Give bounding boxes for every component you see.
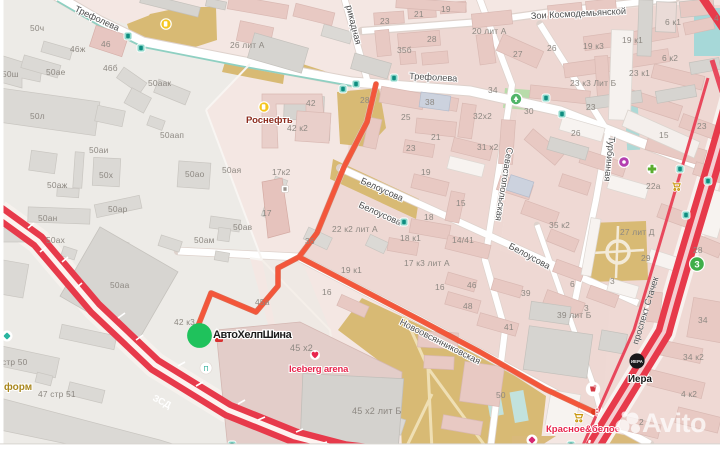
svg-text:19: 19	[421, 167, 431, 177]
svg-text:6 к1: 6 к1	[665, 17, 681, 27]
svg-text:26: 26	[571, 128, 581, 138]
svg-text:Роснефть: Роснефть	[246, 115, 293, 126]
svg-text:50ао: 50ао	[185, 169, 205, 179]
svg-text:3: 3	[584, 303, 589, 313]
svg-text:39: 39	[521, 288, 531, 298]
svg-text:50ав: 50ав	[233, 222, 253, 232]
svg-text:50аа: 50аа	[110, 280, 130, 290]
svg-text:20 лит А: 20 лит А	[472, 26, 507, 36]
svg-text:42: 42	[306, 98, 316, 108]
svg-text:50аж: 50аж	[47, 180, 68, 190]
svg-text:23: 23	[406, 143, 416, 153]
svg-text:17 к3 лит А: 17 к3 лит А	[404, 258, 450, 268]
svg-text:17к2: 17к2	[272, 167, 291, 177]
svg-text:29: 29	[641, 253, 651, 263]
svg-text:28: 28	[427, 34, 437, 44]
svg-text:Красное&белое: Красное&белое	[546, 424, 620, 435]
svg-text:18: 18	[424, 212, 434, 222]
svg-text:50аап: 50аап	[160, 130, 184, 140]
svg-text:19 к1: 19 к1	[622, 35, 643, 45]
svg-text:4 к2: 4 к2	[681, 389, 697, 399]
svg-text:23: 23	[380, 16, 390, 26]
svg-text:19 к3: 19 к3	[583, 41, 604, 51]
svg-text:48: 48	[463, 301, 473, 311]
svg-text:16: 16	[322, 287, 332, 297]
svg-text:50: 50	[496, 390, 506, 400]
svg-text:Iceberg arena: Iceberg arena	[289, 364, 349, 375]
svg-text:15: 15	[659, 130, 669, 140]
svg-text:22 к2 лит А: 22 к2 лит А	[332, 224, 378, 234]
svg-text:форм: форм	[4, 381, 32, 393]
svg-text:Иера: Иера	[628, 374, 652, 385]
svg-text:30: 30	[524, 106, 534, 116]
svg-text:32х2: 32х2	[473, 111, 492, 121]
svg-text:50аи: 50аи	[89, 145, 109, 155]
svg-text:АвтоХелпШина: АвтоХелпШина	[213, 329, 293, 341]
svg-text:47 стр 51: 47 стр 51	[38, 389, 76, 399]
svg-text:45а: 45а	[255, 297, 270, 307]
svg-text:28: 28	[693, 245, 703, 255]
svg-text:22а: 22а	[646, 181, 661, 191]
svg-text:6: 6	[570, 279, 575, 289]
svg-text:26: 26	[547, 43, 557, 53]
svg-text:50ае: 50ае	[46, 67, 66, 77]
svg-text:35 к2: 35 к2	[549, 220, 570, 230]
svg-text:34: 34	[698, 315, 708, 325]
svg-text:3: 3	[694, 259, 699, 270]
svg-text:50ам: 50ам	[194, 235, 215, 245]
svg-text:46: 46	[467, 280, 477, 290]
svg-text:16: 16	[435, 282, 445, 292]
svg-text:50л: 50л	[30, 111, 45, 121]
svg-text:50ая: 50ая	[222, 165, 241, 175]
svg-text:25: 25	[401, 112, 411, 122]
svg-text:17: 17	[262, 208, 272, 218]
svg-text:6 к2: 6 к2	[662, 53, 678, 63]
svg-text:31 х2: 31 х2	[477, 142, 499, 152]
svg-text:34 к2: 34 к2	[683, 352, 704, 362]
svg-text:50ар: 50ар	[108, 204, 128, 214]
svg-text:50ш: 50ш	[2, 69, 19, 79]
svg-text:15: 15	[456, 198, 466, 208]
svg-text:36: 36	[305, 236, 315, 246]
svg-text:14/41: 14/41	[452, 235, 474, 245]
svg-text:46ж: 46ж	[70, 44, 86, 54]
svg-text:Avito: Avito	[642, 408, 706, 438]
svg-text:18 к1: 18 к1	[400, 233, 421, 243]
svg-text:П: П	[203, 366, 208, 373]
svg-text:45 х2: 45 х2	[290, 343, 313, 353]
svg-text:28: 28	[360, 95, 370, 105]
svg-text:21: 21	[431, 132, 441, 142]
svg-text:46б: 46б	[103, 63, 118, 73]
svg-text:стр 50: стр 50	[2, 357, 28, 367]
svg-text:35б: 35б	[397, 45, 412, 55]
svg-text:19 к1: 19 к1	[341, 265, 362, 275]
svg-text:19: 19	[441, 4, 451, 14]
svg-text:23: 23	[586, 102, 596, 112]
svg-text:26 лит А: 26 лит А	[230, 40, 265, 50]
svg-text:27 лит Д: 27 лит Д	[620, 227, 655, 237]
svg-text:34: 34	[488, 85, 498, 95]
svg-text:4: 4	[714, 13, 719, 23]
svg-text:50х: 50х	[99, 170, 114, 180]
svg-text:42 к3: 42 к3	[174, 317, 195, 327]
svg-text:50ч: 50ч	[30, 23, 44, 33]
svg-text:50ан: 50ан	[38, 213, 58, 223]
svg-text:3: 3	[610, 276, 615, 286]
svg-text:21: 21	[414, 9, 424, 19]
svg-text:23 к1: 23 к1	[629, 68, 650, 78]
svg-text:45 х2 лит Б: 45 х2 лит Б	[352, 406, 402, 416]
svg-text:50ах: 50ах	[46, 235, 66, 245]
svg-text:41: 41	[504, 322, 514, 332]
svg-text:ИЕРА: ИЕРА	[631, 359, 643, 364]
svg-text:23: 23	[697, 121, 707, 131]
svg-text:27: 27	[513, 49, 523, 59]
svg-text:46: 46	[101, 39, 111, 49]
svg-text:38: 38	[425, 97, 435, 107]
svg-text:50аак: 50аак	[148, 78, 171, 88]
svg-text:23 к3 Лит Б: 23 к3 Лит Б	[570, 78, 617, 88]
